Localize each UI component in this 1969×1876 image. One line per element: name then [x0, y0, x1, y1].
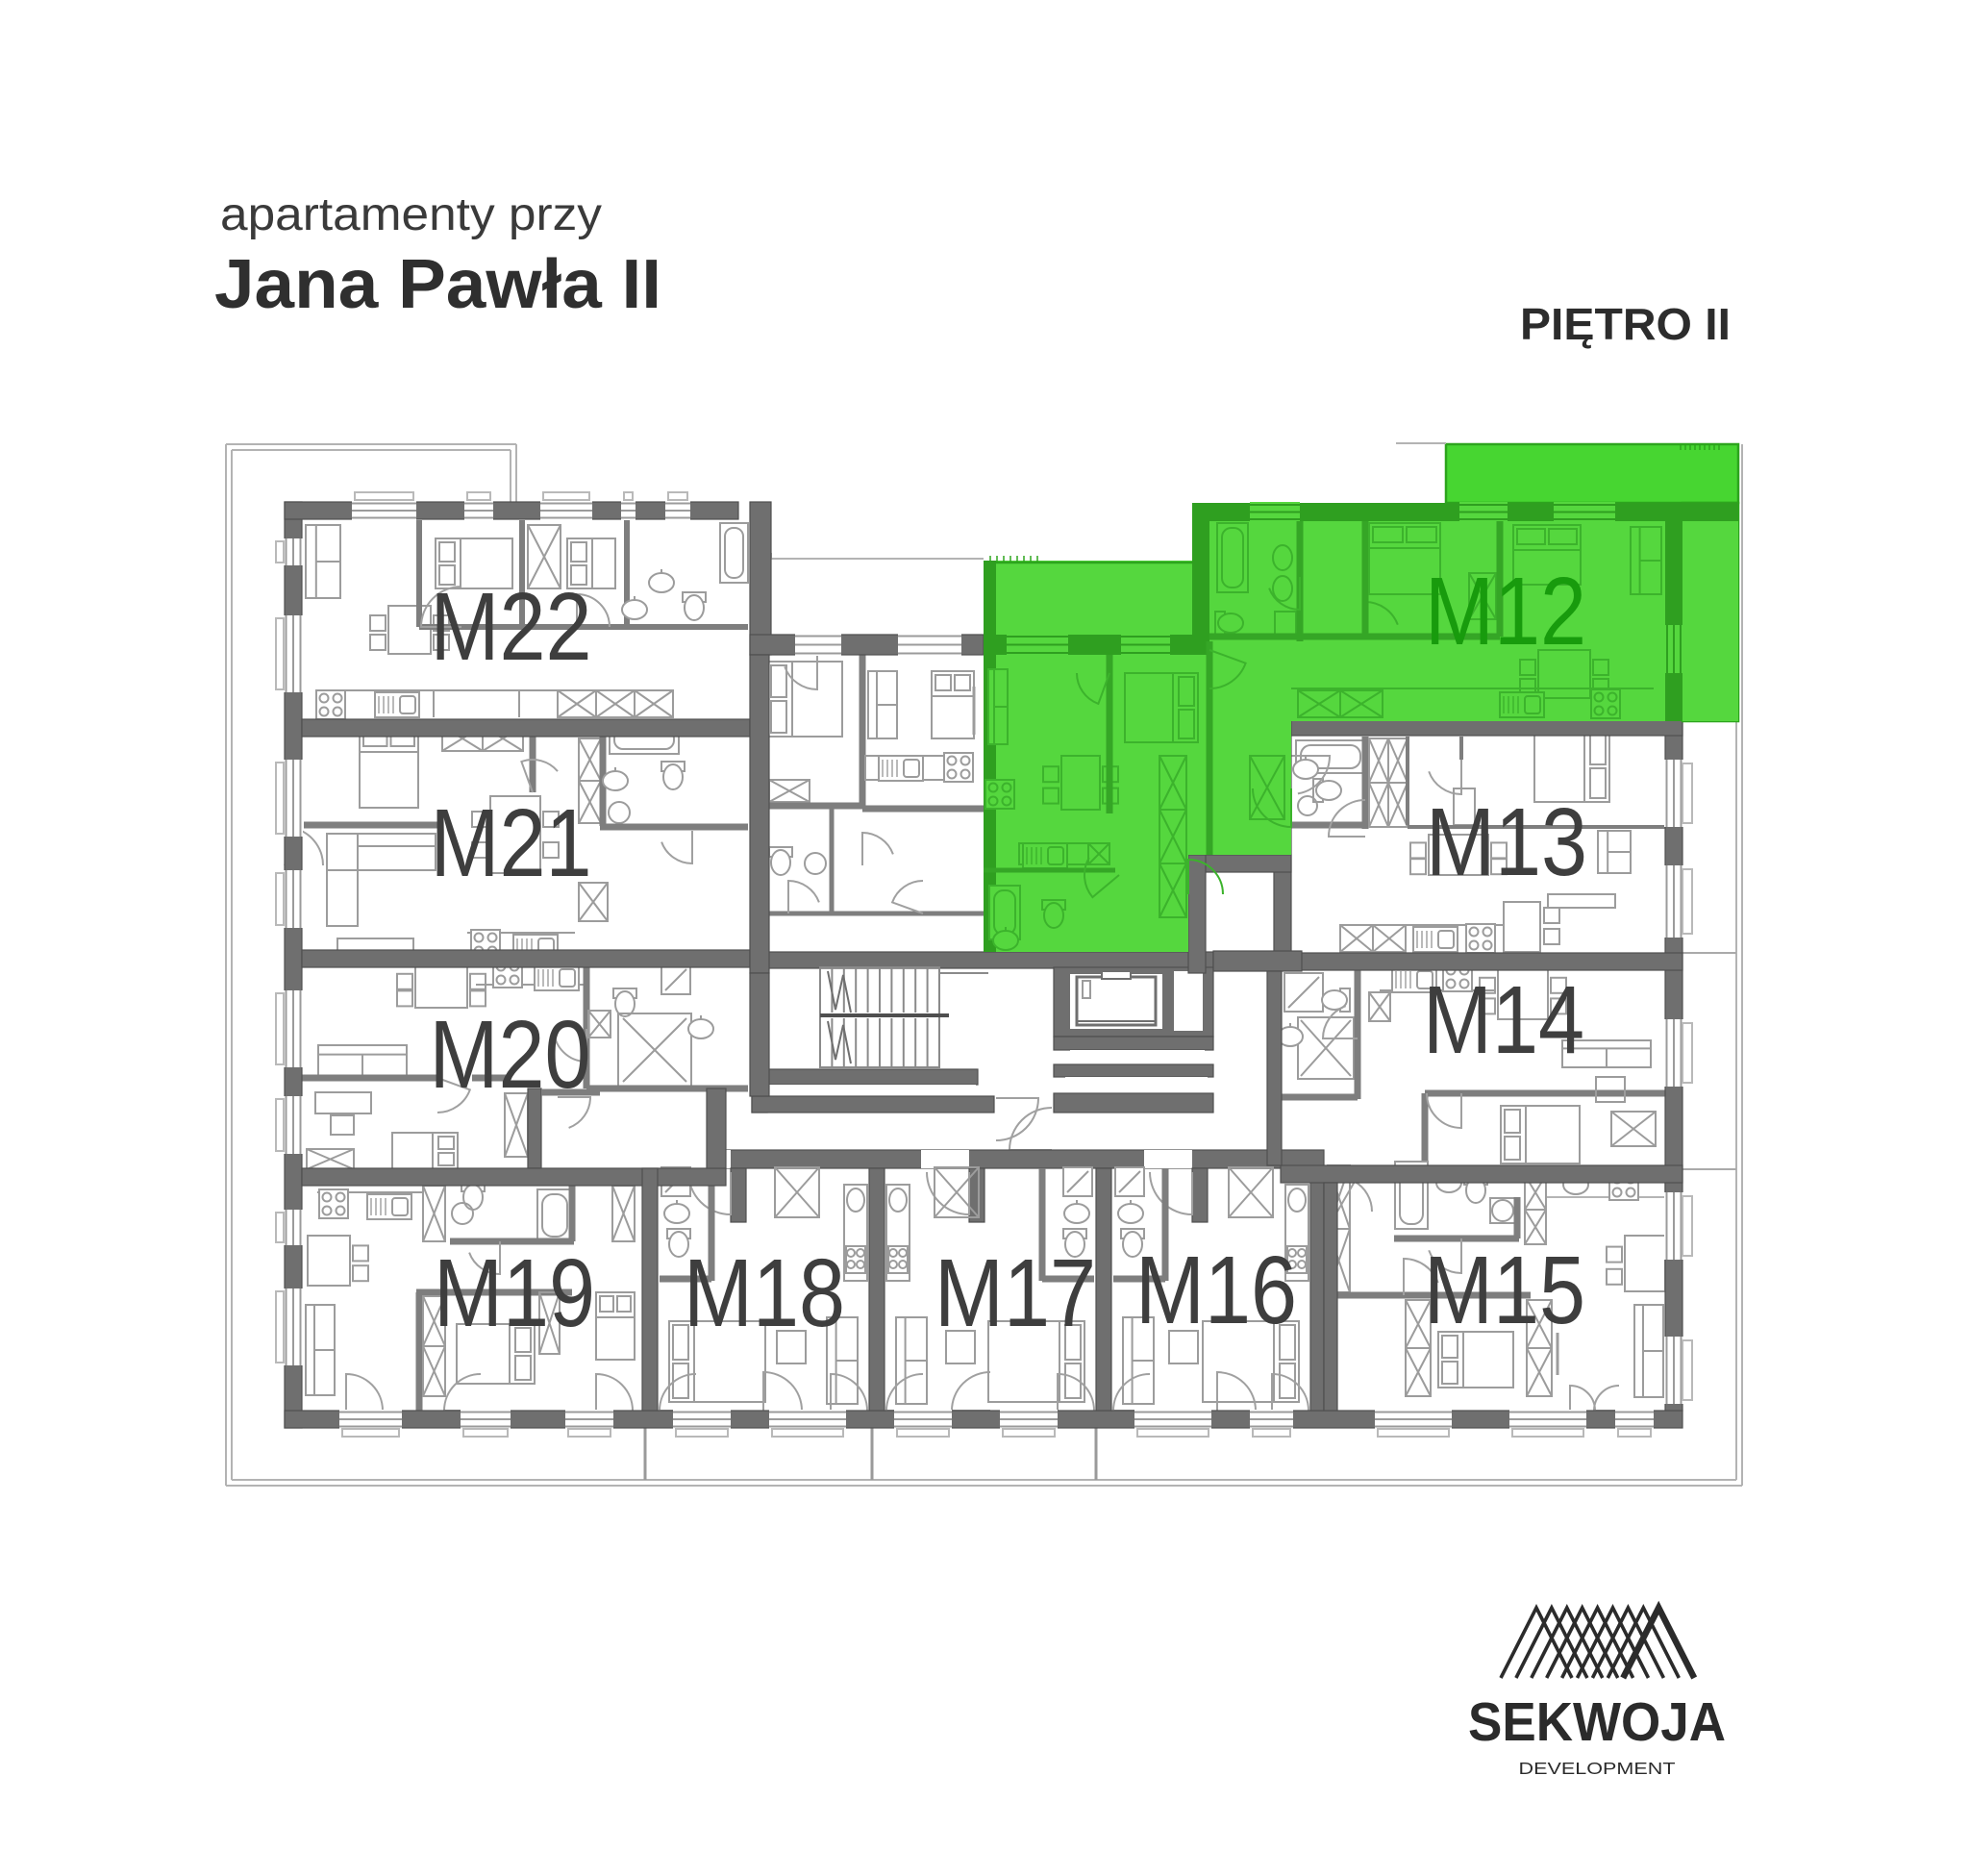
svg-text:Jana Pawła II: Jana Pawła II: [214, 246, 661, 323]
svg-text:M15: M15: [1424, 1237, 1585, 1344]
svg-text:M18: M18: [684, 1239, 845, 1347]
svg-text:apartamenty przy: apartamenty przy: [220, 189, 602, 240]
svg-text:M13: M13: [1426, 788, 1587, 896]
svg-text:M16: M16: [1135, 1237, 1297, 1344]
svg-text:M14: M14: [1423, 966, 1584, 1074]
svg-text:M22: M22: [431, 573, 592, 681]
svg-text:M19: M19: [434, 1239, 595, 1347]
svg-text:M20: M20: [430, 1001, 591, 1109]
svg-text:M17: M17: [935, 1239, 1096, 1347]
svg-text:M21: M21: [431, 789, 592, 897]
svg-text:DEVELOPMENT: DEVELOPMENT: [1519, 1759, 1676, 1778]
svg-text:SEKWOJA: SEKWOJA: [1468, 1691, 1726, 1753]
svg-text:M12: M12: [1425, 558, 1586, 665]
svg-text:PIĘTRO II: PIĘTRO II: [1520, 299, 1731, 349]
